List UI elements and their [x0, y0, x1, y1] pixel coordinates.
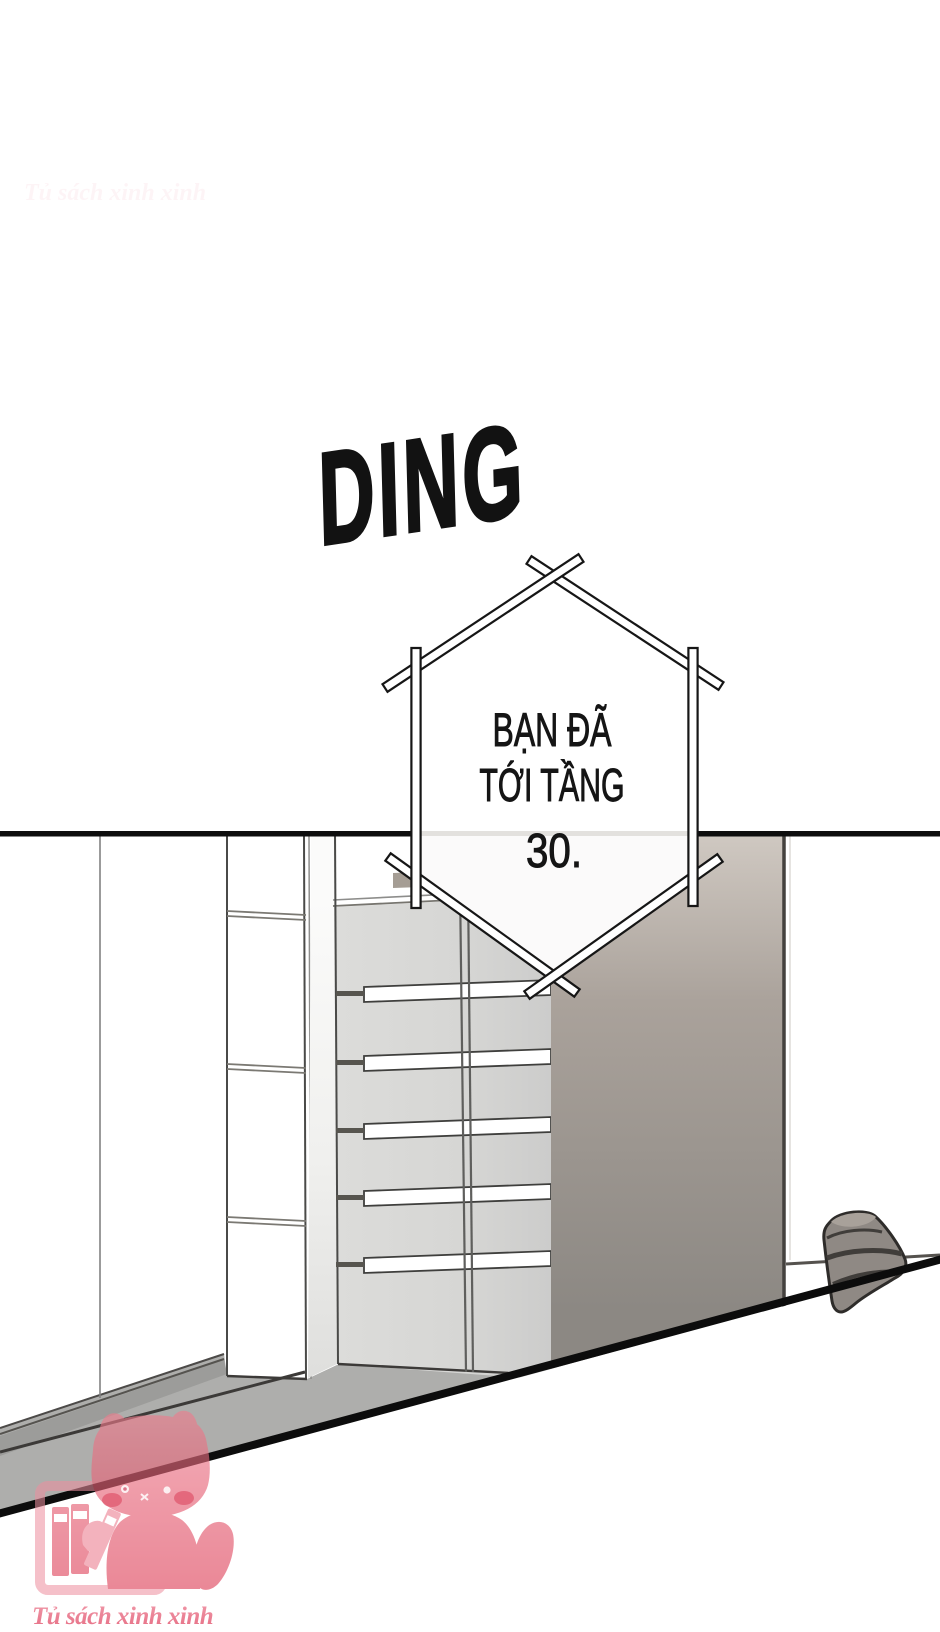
svg-text:30.: 30.: [526, 825, 582, 878]
svg-text:DING: DING: [317, 395, 528, 573]
svg-text:BẠN ĐÃ: BẠN ĐÃ: [493, 704, 612, 757]
svg-text:Tủ sách xinh xinh: Tủ sách xinh xinh: [32, 1603, 213, 1630]
svg-text:TỚI TẦNG: TỚI TẦNG: [479, 760, 624, 812]
svg-text:Tủ sách xinh xinh: Tủ sách xinh xinh: [24, 180, 206, 206]
